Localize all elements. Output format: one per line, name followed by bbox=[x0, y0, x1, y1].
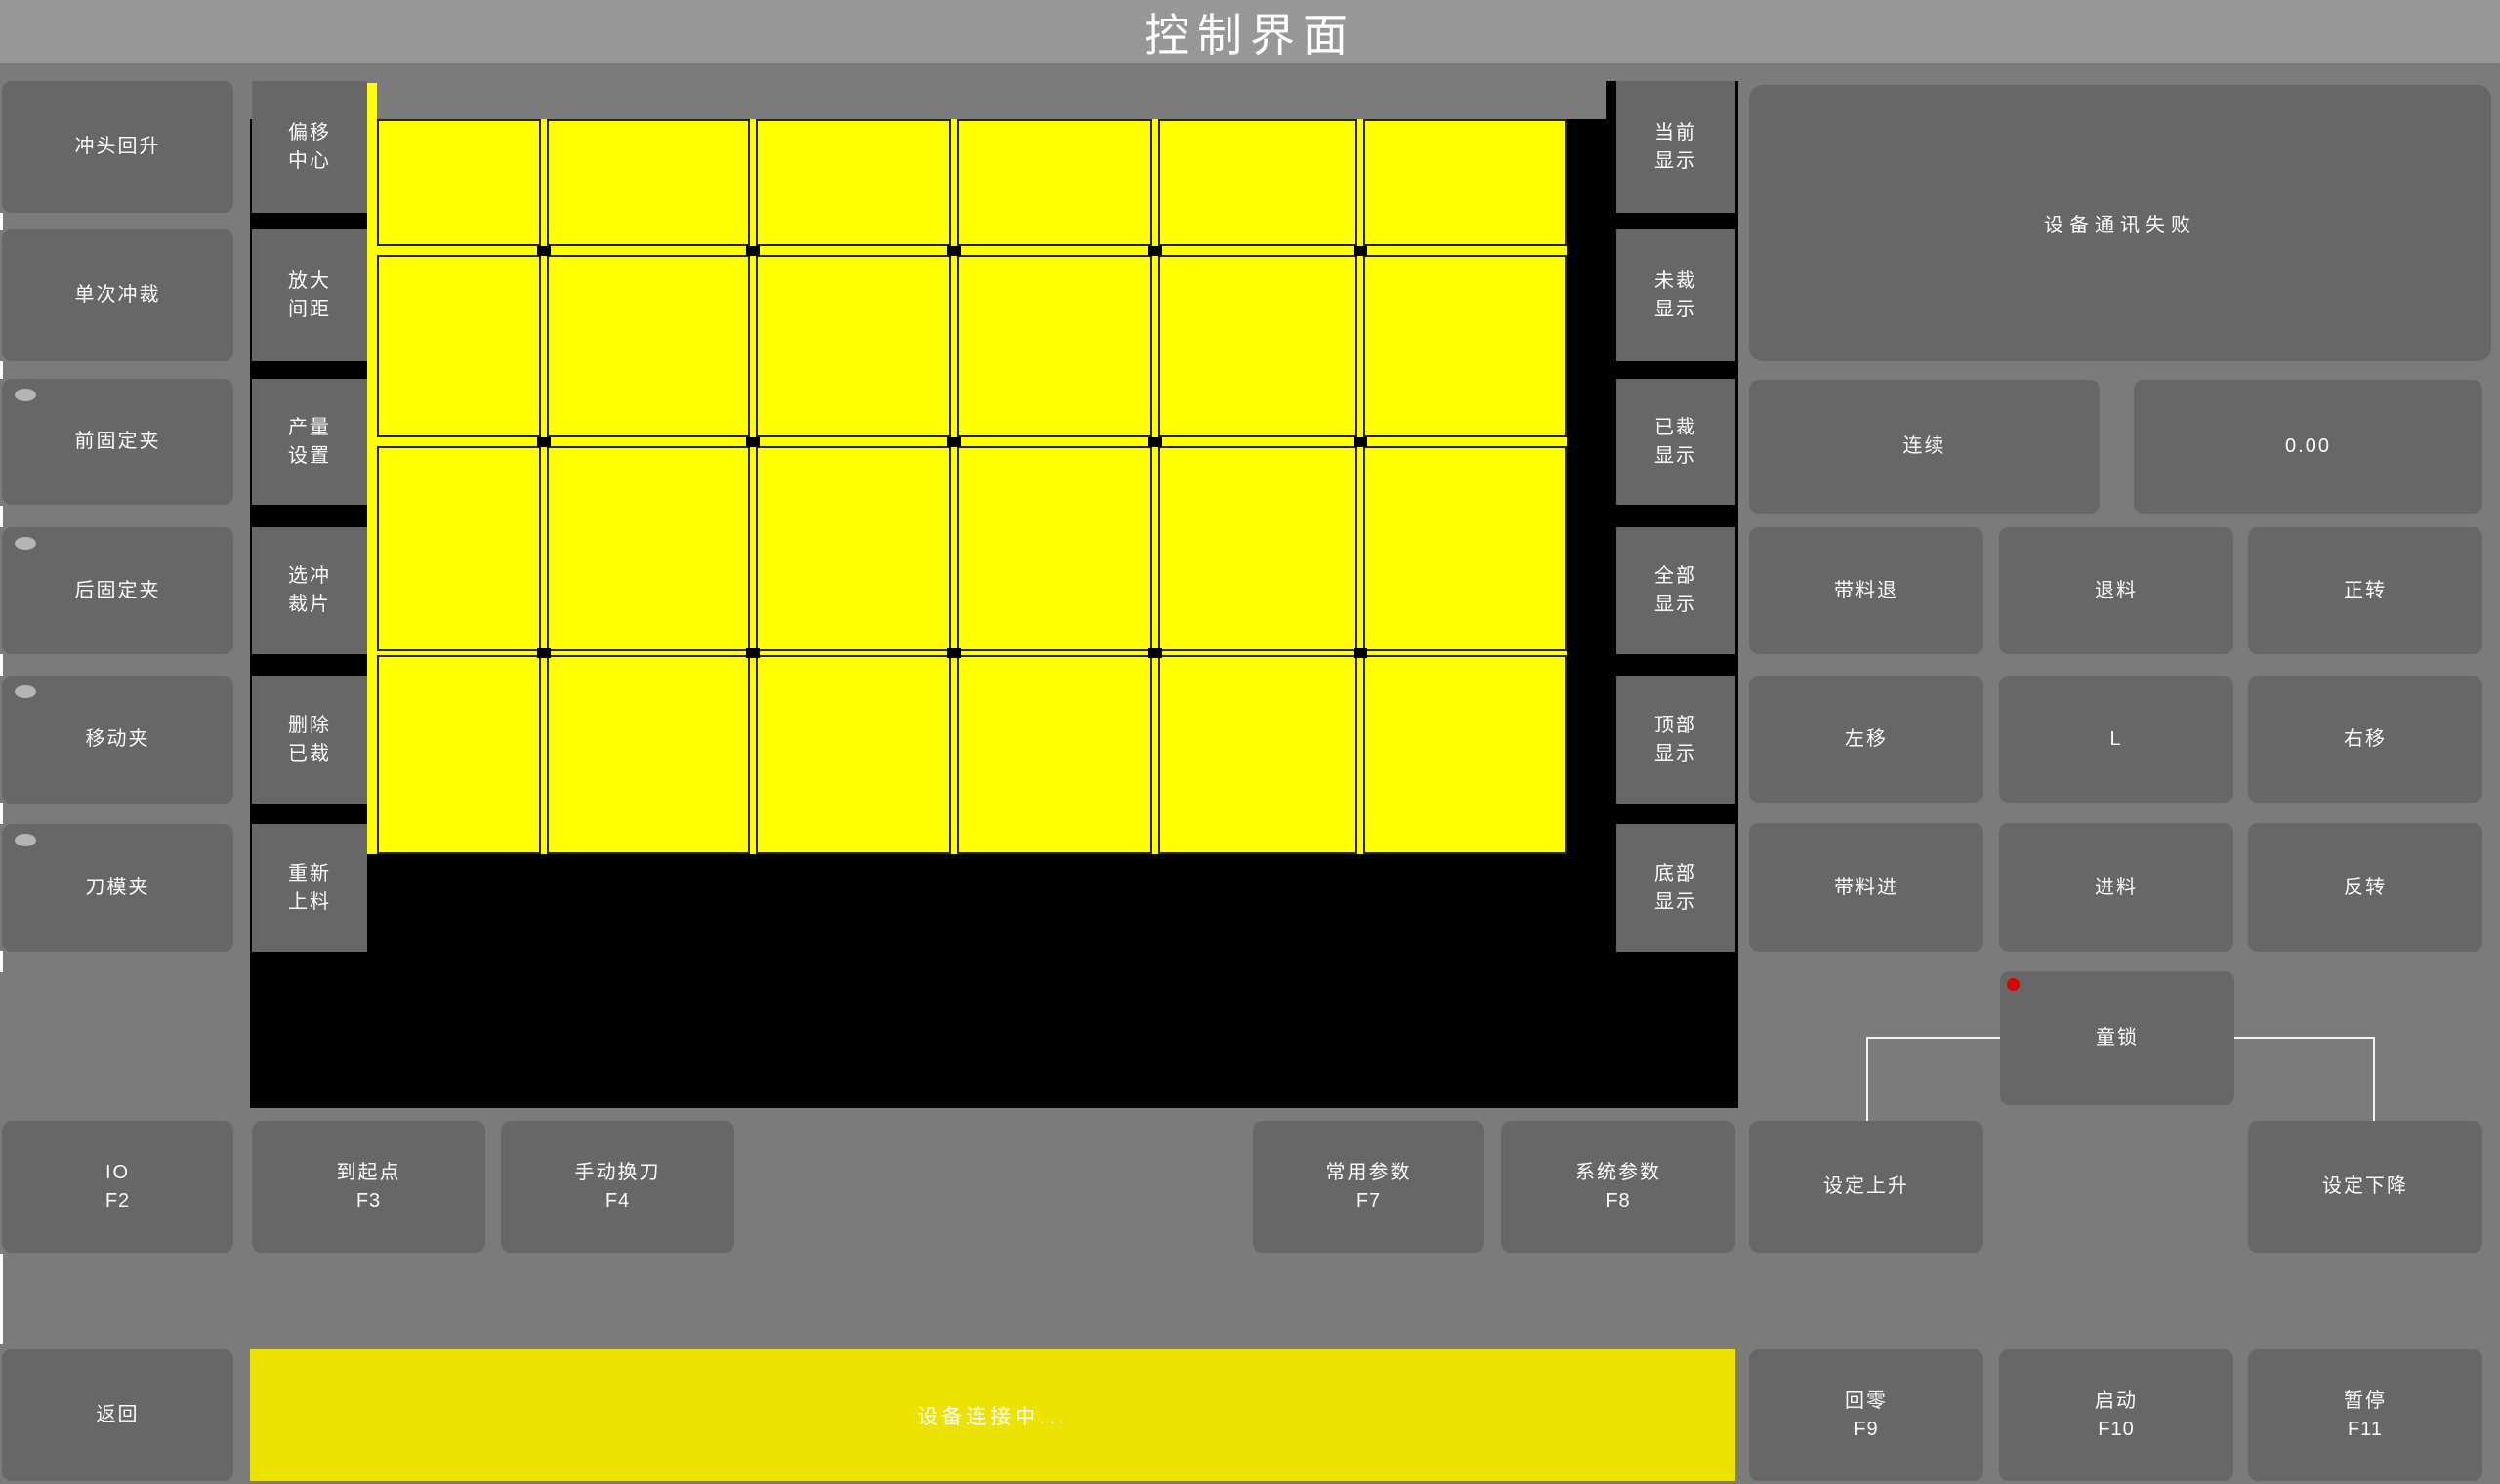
tool-button-放大间距[interactable]: 放大间距 bbox=[252, 229, 367, 361]
display-button-底部显示[interactable]: 底部显示 bbox=[1616, 824, 1735, 952]
material-piece-r3c6[interactable] bbox=[1363, 446, 1567, 651]
edge-tick bbox=[0, 506, 3, 527]
lock-link-line-left-v bbox=[1866, 1037, 1868, 1123]
jog-button-右移[interactable]: 右移 bbox=[2248, 676, 2482, 803]
control-screen: 控制界面 设备通讯失败 连续 0.00 带料退退料正转左移L右移带料进进料反转 … bbox=[0, 0, 2500, 1484]
tool-button-删除已裁[interactable]: 删除已裁 bbox=[252, 676, 367, 804]
material-piece-r1c2[interactable] bbox=[547, 119, 750, 246]
state-led-icon bbox=[15, 685, 36, 698]
grid-notch bbox=[947, 246, 961, 256]
grid-notch bbox=[1354, 437, 1367, 447]
jog-button-正转[interactable]: 正转 bbox=[2248, 527, 2482, 654]
function-button-到起点[interactable]: 到起点F3 bbox=[252, 1121, 485, 1253]
bottom-button-启动[interactable]: 启动F10 bbox=[1999, 1349, 2233, 1481]
grid-notch bbox=[1148, 648, 1162, 658]
display-button-全部显示[interactable]: 全部显示 bbox=[1616, 527, 1735, 654]
function-button-设定上升[interactable]: 设定上升 bbox=[1749, 1121, 1983, 1253]
grid-notch bbox=[1148, 246, 1162, 256]
display-button-未裁显示[interactable]: 未裁显示 bbox=[1616, 229, 1735, 361]
grid-notch bbox=[947, 648, 961, 658]
material-piece-r4c2[interactable] bbox=[547, 655, 750, 854]
material-piece-r4c4[interactable] bbox=[957, 655, 1152, 854]
tool-button-重新上料[interactable]: 重新上料 bbox=[252, 824, 367, 952]
edge-tick bbox=[0, 361, 3, 379]
tool-button-偏移中心[interactable]: 偏移中心 bbox=[252, 81, 367, 213]
grid-notch bbox=[537, 246, 551, 256]
material-piece-r3c1[interactable] bbox=[377, 446, 541, 651]
material-edge-strip bbox=[367, 83, 377, 854]
edge-tick bbox=[0, 1254, 3, 1344]
jog-button-带料进[interactable]: 带料进 bbox=[1749, 823, 1983, 952]
material-piece-r1c3[interactable] bbox=[756, 119, 951, 246]
material-piece-r1c5[interactable] bbox=[1158, 119, 1357, 246]
piece-grid bbox=[377, 119, 1567, 854]
material-piece-r4c1[interactable] bbox=[377, 655, 541, 854]
jog-button-反转[interactable]: 反转 bbox=[2248, 823, 2482, 952]
left-button-冲头回升[interactable]: 冲头回升 bbox=[2, 81, 233, 213]
edge-tick bbox=[0, 654, 3, 676]
jog-button-左移[interactable]: 左移 bbox=[1749, 676, 1983, 803]
material-piece-r1c6[interactable] bbox=[1363, 119, 1567, 246]
jog-button-带料退[interactable]: 带料退 bbox=[1749, 527, 1983, 654]
left-button-前固定夹[interactable]: 前固定夹 bbox=[2, 379, 233, 505]
back-button[interactable]: 返回 bbox=[2, 1349, 233, 1481]
left-button-单次冲裁[interactable]: 单次冲裁 bbox=[2, 229, 233, 361]
material-piece-r2c3[interactable] bbox=[756, 255, 951, 437]
edge-tick bbox=[0, 951, 3, 972]
material-piece-r4c6[interactable] bbox=[1363, 655, 1567, 854]
left-button-移动夹[interactable]: 移动夹 bbox=[2, 676, 233, 804]
child-lock-button[interactable]: 童锁 bbox=[2000, 971, 2234, 1105]
connection-status-bar: 设备连接中... bbox=[250, 1349, 1735, 1481]
function-button-设定下降[interactable]: 设定下降 bbox=[2248, 1121, 2482, 1253]
status-text: 设备连接中... bbox=[917, 1401, 1068, 1430]
title-bar: 控制界面 bbox=[0, 0, 2500, 63]
jog-button-L[interactable]: L bbox=[1999, 676, 2233, 803]
grid-notch bbox=[947, 437, 961, 447]
function-button-手动换刀[interactable]: 手动换刀F4 bbox=[501, 1121, 734, 1253]
display-button-顶部显示[interactable]: 顶部显示 bbox=[1616, 676, 1735, 804]
material-piece-r2c5[interactable] bbox=[1158, 255, 1357, 437]
jog-button-退料[interactable]: 退料 bbox=[1999, 527, 2233, 654]
left-button-刀模夹[interactable]: 刀模夹 bbox=[2, 824, 233, 952]
function-button-常用参数[interactable]: 常用参数F7 bbox=[1253, 1121, 1484, 1253]
canvas-top-band bbox=[250, 81, 1606, 119]
tool-button-选冲裁片[interactable]: 选冲裁片 bbox=[252, 527, 367, 654]
grid-notch bbox=[746, 246, 760, 256]
function-button-系统参数[interactable]: 系统参数F8 bbox=[1501, 1121, 1735, 1253]
jog-button-进料[interactable]: 进料 bbox=[1999, 823, 2233, 952]
material-piece-r1c1[interactable] bbox=[377, 119, 541, 246]
material-piece-r2c1[interactable] bbox=[377, 255, 541, 437]
alarm-message-panel: 设备通讯失败 bbox=[1749, 85, 2491, 361]
left-button-后固定夹[interactable]: 后固定夹 bbox=[2, 527, 233, 654]
value-display[interactable]: 0.00 bbox=[2134, 380, 2482, 514]
bottom-button-回零[interactable]: 回零F9 bbox=[1749, 1349, 1983, 1481]
bottom-button-暂停[interactable]: 暂停F11 bbox=[2248, 1349, 2482, 1481]
material-piece-r3c3[interactable] bbox=[756, 446, 951, 651]
grid-notch bbox=[1148, 437, 1162, 447]
grid-notch bbox=[1354, 246, 1367, 256]
alarm-message: 设备通讯失败 bbox=[2044, 209, 2196, 237]
display-button-已裁显示[interactable]: 已裁显示 bbox=[1616, 379, 1735, 505]
display-button-当前显示[interactable]: 当前显示 bbox=[1616, 81, 1735, 213]
material-piece-r3c4[interactable] bbox=[957, 446, 1152, 651]
page-title: 控制界面 bbox=[1145, 0, 1355, 64]
material-piece-r4c3[interactable] bbox=[756, 655, 951, 854]
material-piece-r3c2[interactable] bbox=[547, 446, 750, 651]
grid-notch bbox=[537, 648, 551, 658]
state-led-icon bbox=[15, 537, 36, 550]
material-piece-r1c4[interactable] bbox=[957, 119, 1152, 246]
state-led-icon bbox=[15, 389, 36, 401]
function-button-IO[interactable]: IOF2 bbox=[2, 1121, 233, 1253]
grid-notch bbox=[537, 437, 551, 447]
grid-notch bbox=[1354, 648, 1367, 658]
mode-button[interactable]: 连续 bbox=[1749, 380, 2100, 514]
material-piece-r4c5[interactable] bbox=[1158, 655, 1357, 854]
grid-notch bbox=[746, 437, 760, 447]
edge-tick bbox=[0, 803, 3, 824]
tool-button-产量设置[interactable]: 产量设置 bbox=[252, 379, 367, 505]
material-piece-r2c6[interactable] bbox=[1363, 255, 1567, 437]
lock-link-line-right-v bbox=[2373, 1037, 2375, 1123]
lock-link-line-right-h bbox=[2234, 1037, 2373, 1039]
material-piece-r2c4[interactable] bbox=[957, 255, 1152, 437]
state-led-icon bbox=[15, 834, 36, 846]
material-piece-r2c2[interactable] bbox=[547, 255, 750, 437]
grid-notch bbox=[746, 648, 760, 658]
alarm-led-icon bbox=[2007, 978, 2020, 991]
lock-link-line-left-h bbox=[1866, 1037, 2000, 1039]
material-piece-r3c5[interactable] bbox=[1158, 446, 1357, 651]
edge-tick bbox=[0, 213, 3, 230]
